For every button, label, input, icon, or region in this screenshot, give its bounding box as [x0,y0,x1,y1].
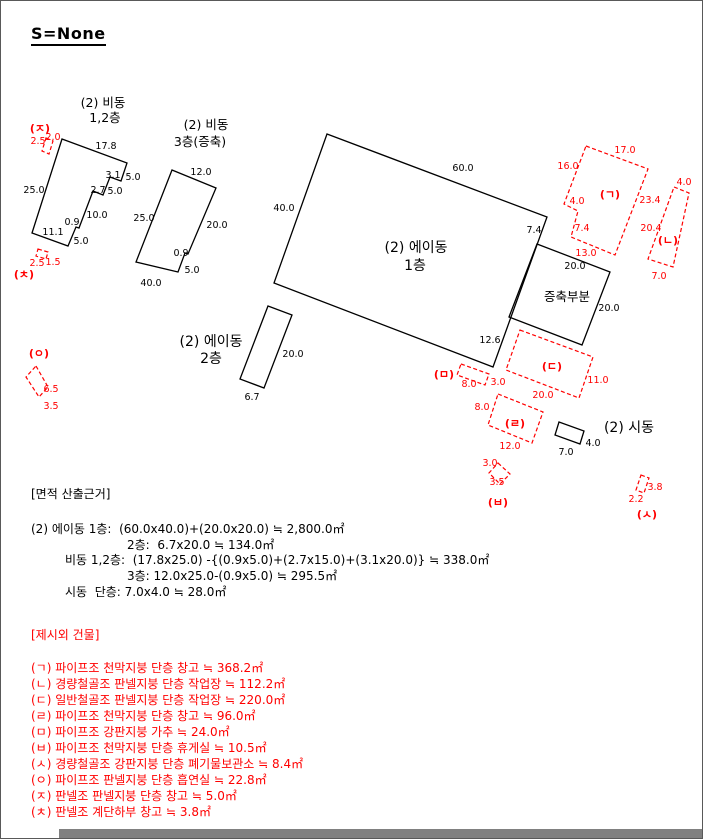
dim-label: 13.0 [575,248,596,259]
dim-label: 10.0 [86,210,107,221]
dim-label: 5.0 [73,236,88,247]
annex-letter-label: (ㅂ) [488,496,508,509]
external-building-item: (ㅅ) 경량철골조 강판지붕 단층 폐기물보관소 ≒ 8.4㎡ [31,756,303,772]
dim-label: 2.7 [90,185,105,196]
dim-label: 20.4 [640,223,661,234]
dim-label: 0.9 [173,248,188,259]
building-a-floor2-outline [240,306,292,388]
annex-letter-label: (ㄱ) [600,188,620,201]
dim-label: 3.0 [482,458,497,469]
dim-label: 8.0 [461,379,476,390]
dim-label: 5.0 [184,265,199,276]
dim-label: 3.5 [43,401,58,412]
dim-label: 2.2 [628,494,643,505]
dim-label: 0.9 [64,217,79,228]
building-title: (2) 에이동 [180,334,243,350]
dim-label: 16.0 [557,161,578,172]
building-title: 2층 [200,351,222,367]
external-building-item: (ㅁ) 파이프조 강판지붕 가추 ≒ 24.0㎡ [31,724,303,740]
external-building-item: (ㅊ) 판넬조 계단하부 창고 ≒ 3.8㎡ [31,804,303,820]
dim-label: 6.5 [43,384,58,395]
external-building-item: (ㅇ) 파이프조 판넬지붕 단층 흡연실 ≒ 22.8㎡ [31,772,303,788]
dim-label: 2.5 [30,136,45,147]
dim-label: 25.0 [133,213,154,224]
external-building-item: (ㄹ) 파이프조 천막지붕 단층 창고 ≒ 96.0㎡ [31,708,303,724]
dim-label: 8.0 [474,402,489,413]
dim-label: 4.0 [676,177,691,188]
dim-label: 2.0 [45,132,60,143]
external-buildings-header: [제시외 건물] [31,628,303,642]
external-building-item: (ㄴ) 경량철골조 판넬지붕 단층 작업장 ≒ 112.2㎡ [31,676,303,692]
dim-label: 20.0 [564,261,585,272]
dim-label: 7.0 [558,447,573,458]
dim-label: 12.6 [479,335,500,346]
annex-letter-label: (ㄷ) [542,360,562,373]
external-buildings-section: [제시외 건물] (ㄱ) 파이프조 천막지붕 단층 창고 ≒ 368.2㎡(ㄴ)… [31,628,303,820]
dim-label: 40.0 [273,203,294,214]
external-buildings-list: (ㄱ) 파이프조 천막지붕 단층 창고 ≒ 368.2㎡(ㄴ) 경량철골조 판넬… [31,660,303,820]
dim-label: 25.0 [23,185,44,196]
dim-label: 20.0 [598,303,619,314]
building-title: (2) 시동 [604,420,654,436]
annex-letter-label: (ㅁ) [434,368,454,381]
dim-label: 4.0 [569,196,584,207]
dim-label: 7.4 [526,225,541,236]
dim-label: 5.0 [107,186,122,197]
dim-label: 2.5 [29,258,44,269]
dim-label: 17.0 [614,145,635,156]
dim-label: 3.8 [647,482,662,493]
dim-label: 11.0 [587,375,608,386]
dim-label: 20.0 [282,349,303,360]
building-title: 1,2층 [89,110,120,125]
area-basis-lines: (2) 에이동 1층: (60.0x40.0)+(20.0x20.0) ≒ 2,… [31,522,489,601]
document-page: S=None 17.83.15.02.75.010.00.95.011.125.… [0,0,703,839]
building-title: 1층 [404,258,426,274]
dim-label: 20.0 [206,220,227,231]
dim-label: 5.0 [125,172,140,183]
area-basis-section: [면적 산출근거] (2) 에이동 1층: (60.0x40.0)+(20.0x… [31,487,489,601]
annex-letter-label: (ㅇ) [29,347,49,360]
area-basis-line: 시동 단층: 7.0x4.0 ≒ 28.0㎡ [65,585,489,601]
dim-label: 3.0 [490,377,505,388]
dim-label: 1.5 [45,257,60,268]
dim-label: 7.0 [651,271,666,282]
building-si-outline [555,422,584,444]
annex-letter-label: (ㄹ) [505,417,525,430]
dim-label: 12.0 [190,167,211,178]
annex-letter-label: (ㅅ) [637,508,657,521]
building-title: (2) 에이동 [385,240,448,256]
dim-label: 3.1 [105,170,120,181]
dim-label: 40.0 [140,278,161,289]
building-title: 3층(증축) [174,134,226,149]
bottom-gray-bar [59,829,703,839]
dim-label: 4.0 [585,438,600,449]
area-basis-header: [면적 산출근거] [31,487,489,501]
dim-label: 12.0 [499,441,520,452]
area-basis-line: (2) 에이동 1층: (60.0x40.0)+(20.0x20.0) ≒ 2,… [31,522,489,538]
dim-label: 20.0 [532,390,553,401]
building-title: (2) 비동 [81,95,126,110]
area-basis-line: 3층: 12.0x25.0-(0.9x5.0) ≒ 295.5㎡ [127,569,489,585]
dim-label: 17.8 [95,141,116,152]
area-basis-line: 2층: 6.7x20.0 ≒ 134.0㎡ [127,538,489,554]
external-building-item: (ㅂ) 파이프조 천막지붕 단층 휴게실 ≒ 10.5㎡ [31,740,303,756]
dim-label: 3.5 [489,477,504,488]
external-building-item: (ㄱ) 파이프조 천막지붕 단층 창고 ≒ 368.2㎡ [31,660,303,676]
dim-label: 7.4 [574,223,589,234]
annex-letter-label: (ㄴ) [658,234,678,247]
area-basis-line: 비동 1,2층: (17.8x25.0) -{(0.9x5.0)+(2.7x15… [65,553,489,569]
building-title: (2) 비동 [184,117,229,132]
dim-label: 23.4 [639,195,660,206]
dim-label: 11.1 [42,227,63,238]
dim-label: 60.0 [452,163,473,174]
external-building-item: (ㄷ) 일반철골조 판넬지붕 단층 작업장 ≒ 220.0㎡ [31,692,303,708]
dim-label: 6.7 [244,392,259,403]
external-building-item: (ㅈ) 판넬조 판넬지붕 단층 창고 ≒ 5.0㎡ [31,788,303,804]
building-title: 증축부분 [544,289,590,304]
annex-letter-label: (ㅊ) [14,268,34,281]
